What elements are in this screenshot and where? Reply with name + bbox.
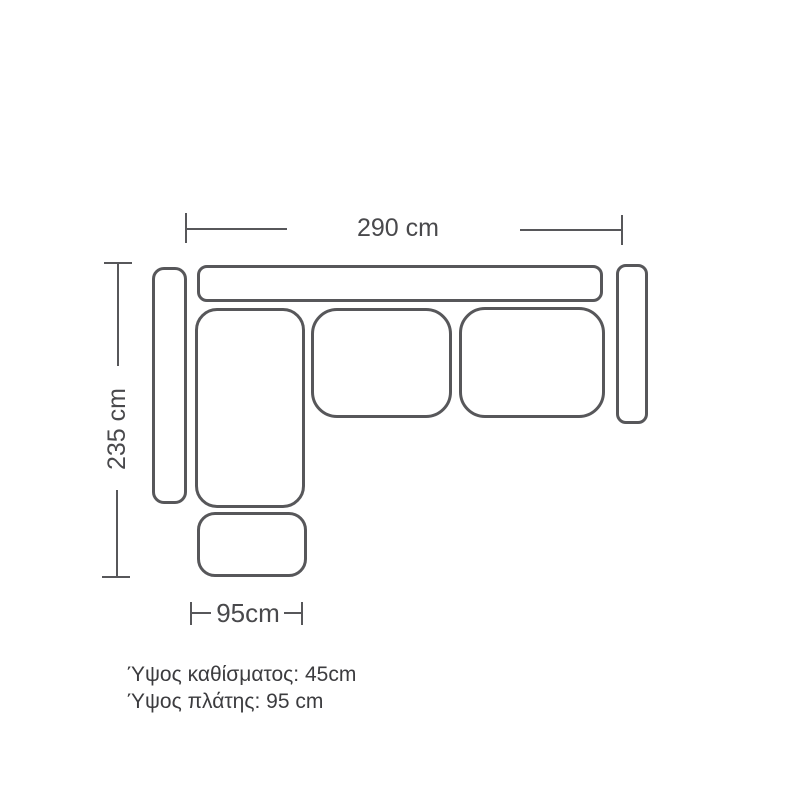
sofa-right-seat-cushion bbox=[459, 307, 605, 418]
top-dimension-line-left bbox=[185, 228, 287, 230]
sofa-left-armrest bbox=[152, 267, 187, 504]
top-dimension-right-tick bbox=[621, 215, 623, 245]
chaise-width-label: 95cm bbox=[211, 599, 285, 627]
sofa-dimension-diagram: 290 cm 235 cm 95cm Ύψος καθίσματος: 45cm… bbox=[0, 0, 800, 800]
sofa-backrest bbox=[197, 265, 603, 302]
sofa-middle-seat-cushion bbox=[311, 308, 452, 418]
total-depth-label: 235 cm bbox=[103, 383, 131, 475]
left-dimension-line-bottom bbox=[116, 490, 118, 578]
bottom-dimension-line-left bbox=[190, 612, 211, 614]
sofa-chaise-seat bbox=[195, 308, 305, 508]
left-dimension-bottom-tick bbox=[102, 576, 130, 578]
height-notes: Ύψος καθίσματος: 45cm Ύψος πλάτης: 95 cm bbox=[127, 661, 356, 715]
bottom-dimension-right-tick bbox=[301, 602, 303, 625]
left-dimension-line-top bbox=[117, 262, 119, 366]
note-back-height: Ύψος πλάτης: 95 cm bbox=[127, 688, 356, 715]
sofa-right-armrest bbox=[616, 264, 648, 424]
sofa-ottoman bbox=[197, 512, 307, 577]
top-dimension-line-right bbox=[520, 229, 623, 231]
total-width-label: 290 cm bbox=[353, 214, 443, 242]
note-seat-height: Ύψος καθίσματος: 45cm bbox=[127, 661, 356, 688]
